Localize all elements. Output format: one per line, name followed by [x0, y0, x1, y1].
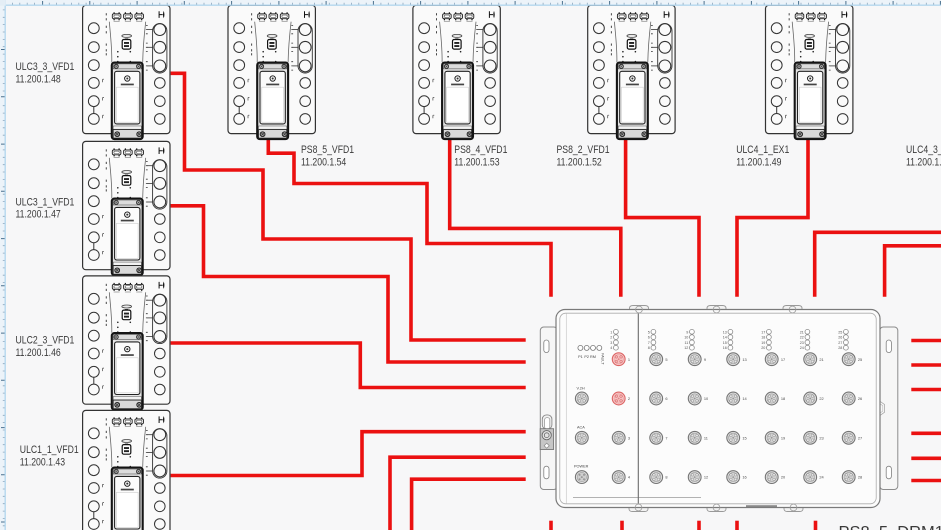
svg-text:11.200.1.46: 11.200.1.46	[16, 347, 62, 359]
svg-text:7: 7	[665, 435, 667, 440]
svg-text:21: 21	[819, 357, 823, 362]
svg-text:28: 28	[858, 475, 862, 480]
svg-text:11.200.1.53: 11.200.1.53	[454, 157, 500, 169]
svg-text:21: 21	[800, 330, 804, 334]
svg-text:22: 22	[819, 396, 823, 401]
svg-text:PS8_5_DRM1: PS8_5_DRM1	[839, 524, 941, 530]
svg-text:26: 26	[858, 396, 862, 401]
svg-text:11: 11	[684, 341, 688, 345]
svg-text:1: 1	[628, 357, 630, 362]
svg-text:27: 27	[858, 435, 862, 440]
svg-text:15: 15	[742, 435, 746, 440]
svg-text:P2: P2	[584, 355, 589, 359]
svg-text:ULC1_1_VFD1: ULC1_1_VFD1	[20, 444, 79, 456]
svg-text:13: 13	[742, 357, 746, 362]
svg-text:ULC4_1_EX1: ULC4_1_EX1	[736, 144, 790, 156]
svg-text:19: 19	[761, 341, 765, 345]
svg-text:P1: P1	[578, 355, 583, 359]
svg-text:ULC4_3_VFD1: ULC4_3_VFD1	[906, 144, 941, 156]
svg-text:11.200.1.43: 11.200.1.43	[20, 457, 66, 469]
svg-text:16: 16	[742, 475, 746, 480]
svg-text:10: 10	[684, 336, 688, 340]
svg-text:20: 20	[761, 346, 765, 350]
svg-text:8: 8	[665, 475, 667, 480]
svg-text:12: 12	[704, 475, 708, 480]
svg-text:11: 11	[704, 435, 708, 440]
svg-text:RM: RM	[590, 355, 596, 359]
svg-text:3: 3	[610, 341, 612, 345]
svg-text:15: 15	[723, 341, 727, 345]
svg-text:PS8_2_VFD1: PS8_2_VFD1	[557, 144, 611, 156]
svg-text:18: 18	[781, 396, 785, 401]
svg-text:19: 19	[781, 435, 785, 440]
svg-text:5: 5	[648, 330, 650, 334]
svg-text:9: 9	[704, 357, 706, 362]
svg-text:12: 12	[684, 346, 688, 350]
svg-text:11.200.1.47: 11.200.1.47	[16, 209, 62, 221]
svg-text:23: 23	[819, 435, 823, 440]
svg-text:1: 1	[610, 330, 612, 334]
svg-text:26: 26	[838, 336, 842, 340]
svg-text:22: 22	[800, 336, 804, 340]
svg-text:4: 4	[610, 346, 612, 350]
svg-text:25: 25	[858, 357, 862, 362]
svg-text:25: 25	[838, 330, 842, 334]
svg-text:6: 6	[665, 396, 667, 401]
svg-text:POWER: POWER	[574, 465, 589, 469]
svg-text:ULC3_3_VFD1: ULC3_3_VFD1	[16, 61, 75, 73]
svg-text:6: 6	[648, 336, 650, 340]
svg-text:11.200.1.54: 11.200.1.54	[301, 157, 347, 169]
svg-text:24: 24	[800, 346, 804, 350]
svg-text:FAULT: FAULT	[601, 353, 605, 365]
svg-text:28: 28	[838, 346, 842, 350]
svg-text:11.200.1.49: 11.200.1.49	[736, 157, 782, 169]
svg-text:27: 27	[838, 341, 842, 345]
svg-text:5: 5	[665, 357, 667, 362]
svg-text:13: 13	[723, 330, 727, 334]
svg-text:V.2H: V.2H	[577, 387, 585, 391]
svg-text:8: 8	[648, 346, 650, 350]
svg-text:18: 18	[761, 336, 765, 340]
svg-text:ULC3_1_VFD1: ULC3_1_VFD1	[16, 196, 75, 208]
svg-text:16: 16	[723, 346, 727, 350]
svg-text:17: 17	[781, 357, 785, 362]
svg-text:2: 2	[628, 396, 630, 401]
svg-text:PS8_4_VFD1: PS8_4_VFD1	[454, 144, 508, 156]
svg-text:3: 3	[628, 435, 630, 440]
svg-text:ACA: ACA	[577, 426, 585, 430]
svg-text:2: 2	[610, 336, 612, 340]
svg-text:11.200.1.52: 11.200.1.52	[557, 157, 603, 169]
svg-text:11.200.1.50: 11.200.1.50	[906, 157, 941, 169]
svg-text:PS8_5_VFD1: PS8_5_VFD1	[301, 144, 355, 156]
svg-text:23: 23	[800, 341, 804, 345]
svg-text:9: 9	[686, 330, 688, 334]
svg-text:ULC2_3_VFD1: ULC2_3_VFD1	[16, 335, 75, 347]
svg-text:14: 14	[723, 336, 727, 340]
svg-text:17: 17	[761, 330, 765, 334]
svg-text:11.200.1.48: 11.200.1.48	[16, 74, 62, 86]
svg-text:7: 7	[648, 341, 650, 345]
